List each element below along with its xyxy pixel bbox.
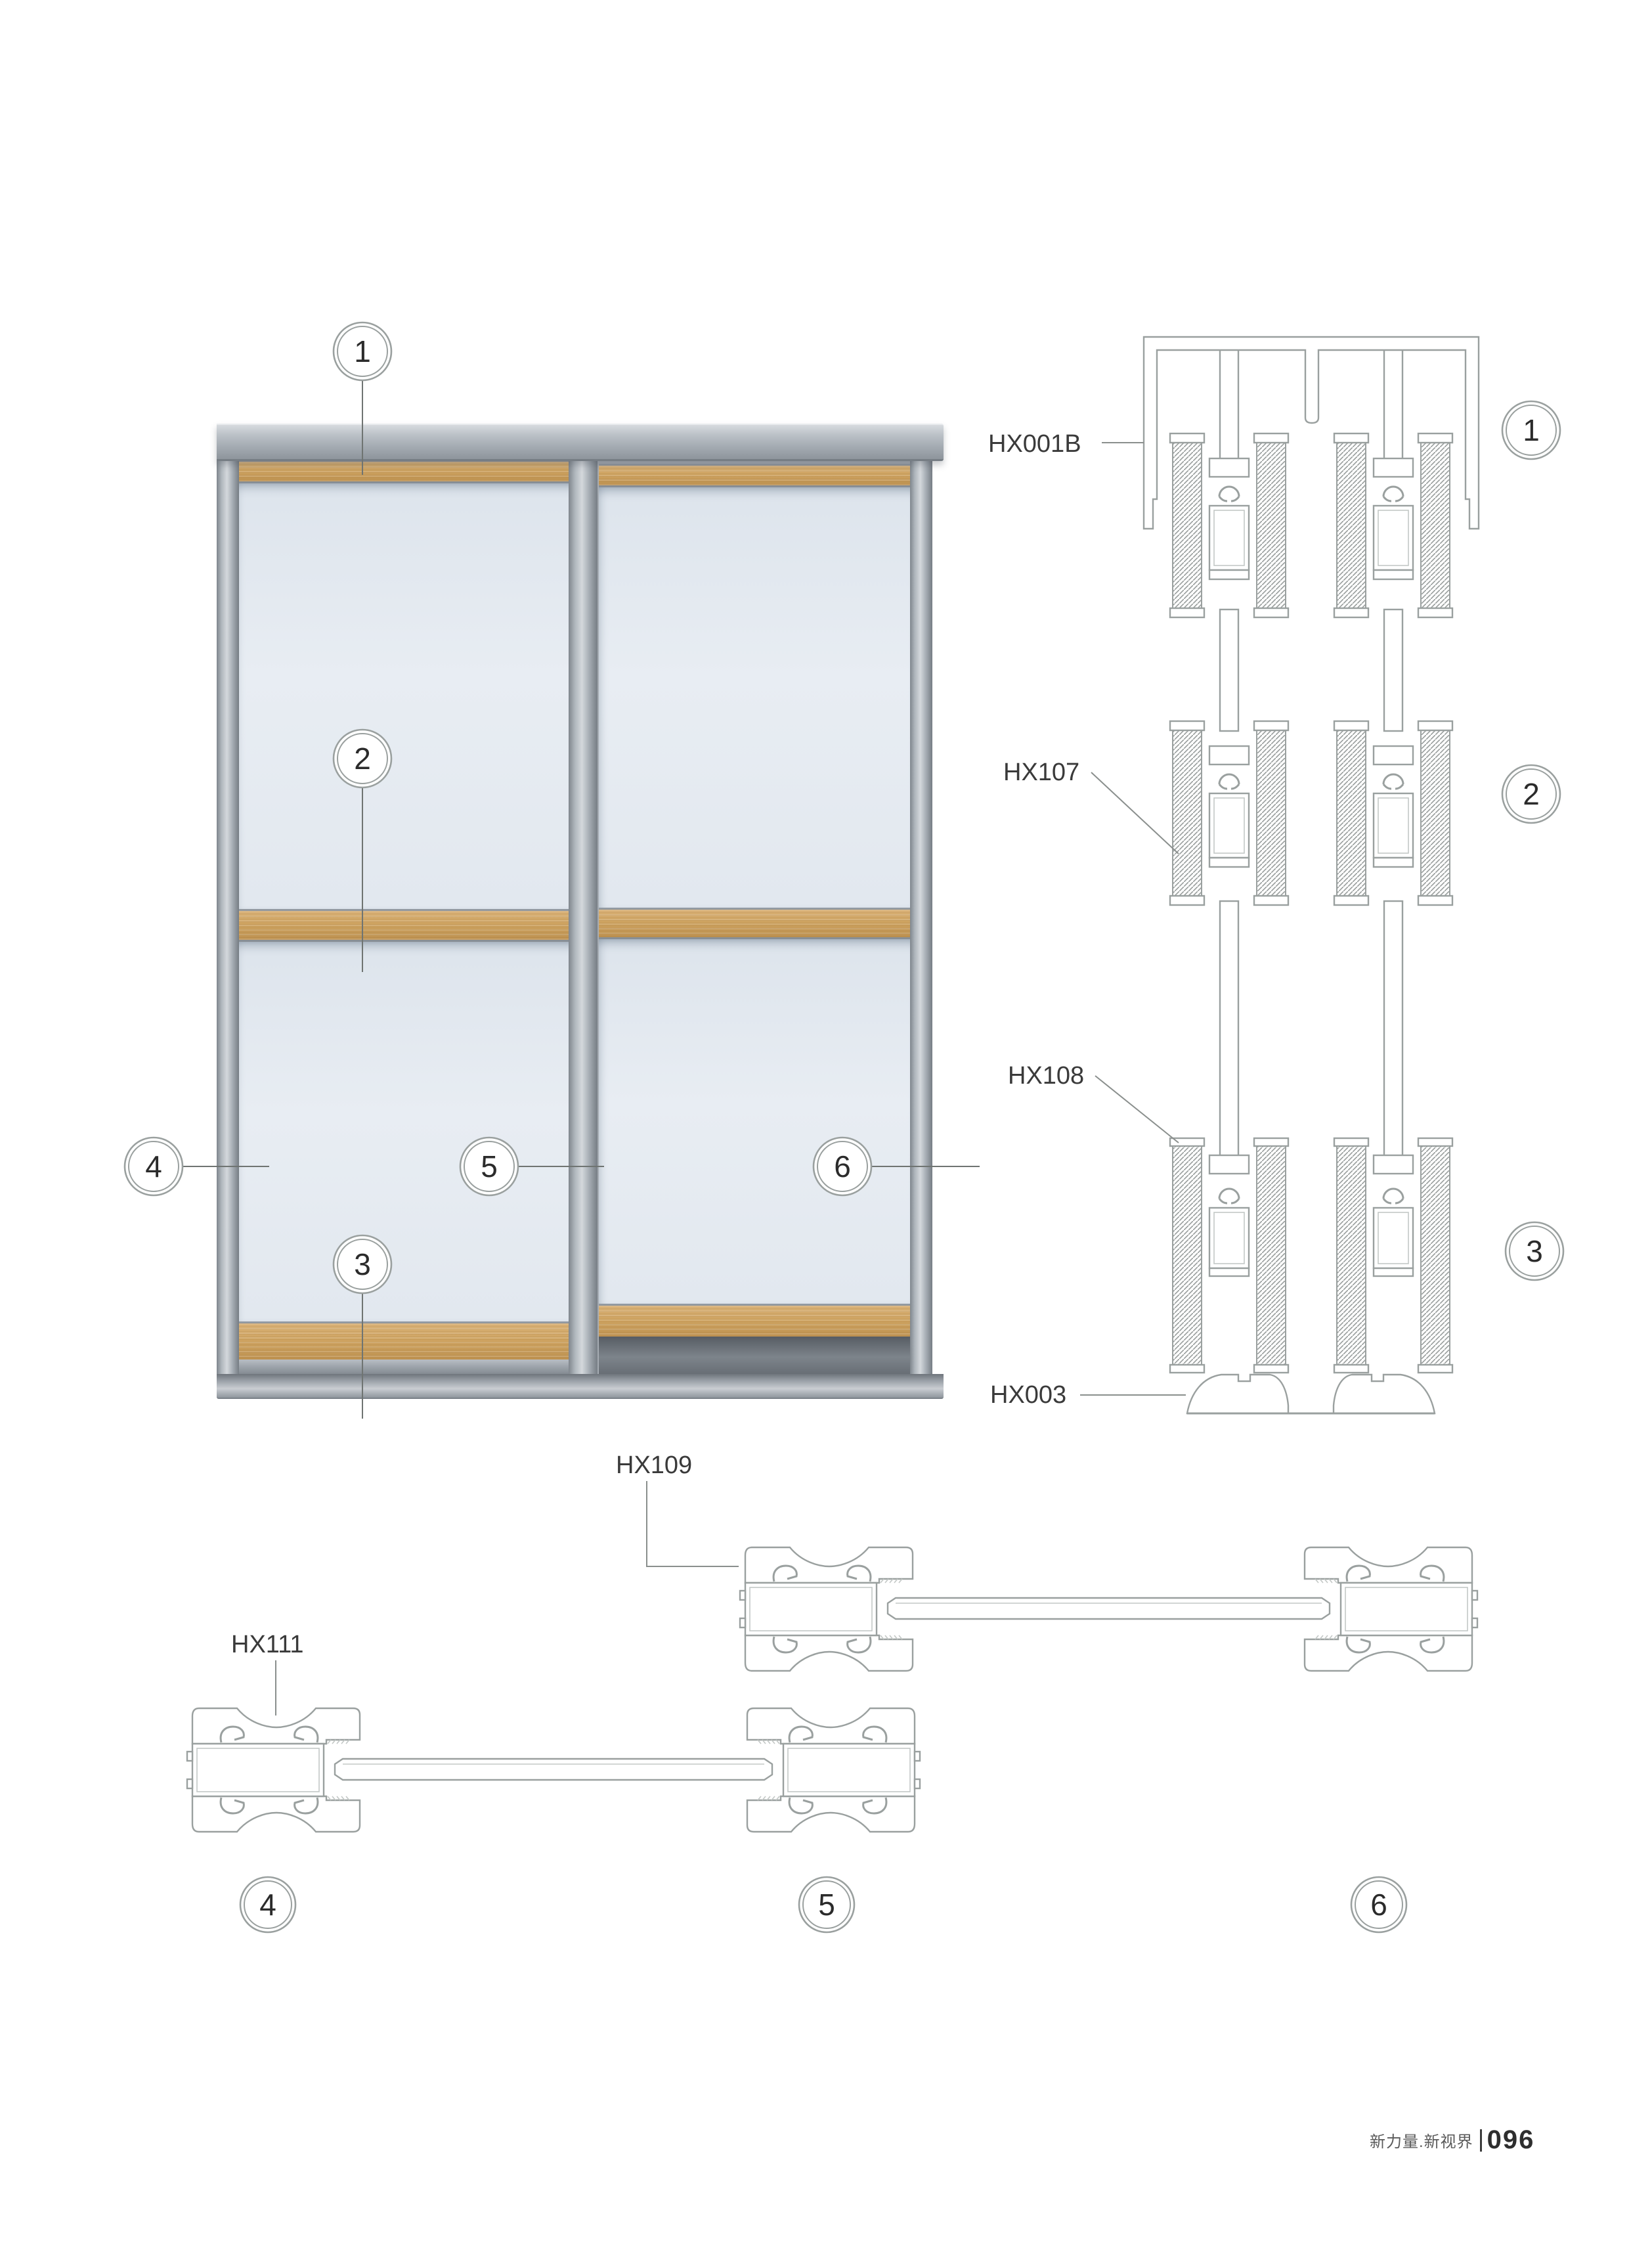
plan-section: [187, 1547, 1477, 1832]
glass-clamp-bottom-right: [1334, 1138, 1452, 1373]
door-jamb-left: [217, 432, 239, 1375]
callout-4: 4: [125, 1138, 183, 1195]
footer-divider: [1480, 2129, 1482, 2152]
svg-text:5: 5: [818, 1888, 835, 1922]
glass-clamp-mid-left: [1170, 721, 1288, 905]
panel-bar-upper: [888, 1598, 1330, 1619]
svg-text:3: 3: [1526, 1234, 1543, 1268]
glass-panel-edge: [1384, 609, 1402, 731]
glass-panel-upper: [599, 487, 918, 908]
label-hx001b: HX001B: [988, 430, 1081, 458]
wood-strip-middle: [236, 909, 587, 942]
glass-panel-edge: [1384, 901, 1402, 1164]
svg-text:2: 2: [1523, 777, 1540, 811]
sliding-door-left: [227, 442, 596, 1374]
svg-text:1: 1: [1523, 413, 1540, 447]
plan-callout-4: 4: [240, 1877, 295, 1932]
wood-strip-middle: [599, 908, 918, 939]
stile-profile-hx109: [740, 1547, 913, 1671]
stile-profile-hx111: [187, 1708, 360, 1832]
label-hx111: HX111: [231, 1631, 304, 1658]
glass-panel-edge: [1220, 901, 1238, 1164]
stile-profile-upper-right: [1305, 1547, 1477, 1671]
svg-text:6: 6: [1370, 1888, 1387, 1922]
page-footer: 新力量.新视界 096: [1370, 2125, 1534, 2155]
glass-panel-edge: [1220, 609, 1238, 731]
glass-clamp-top-right: [1334, 433, 1452, 617]
glass-panel-upper: [236, 483, 587, 909]
wood-strip-bottom: [236, 1321, 587, 1363]
section-callout-3: 3: [1506, 1222, 1563, 1280]
bottom-rail-profile: [1187, 1375, 1435, 1413]
catalog-page: HX001B HX107 HX108 HX003 HX109 HX111 1 2: [0, 0, 1652, 2258]
top-track: [217, 424, 944, 461]
bottom-track-recess: [599, 1337, 918, 1374]
label-hx109: HX109: [616, 1451, 692, 1479]
panel-bar-lower: [335, 1759, 772, 1780]
plan-callout-5: 5: [799, 1877, 854, 1932]
wood-strip-top: [599, 464, 918, 487]
sliding-door-right: [590, 452, 927, 1374]
wood-strip-bottom: [599, 1304, 918, 1340]
stile-profile-lower-middle: [747, 1708, 920, 1832]
glass-clamp-top-left: [1170, 433, 1288, 617]
wood-strip-top: [236, 460, 587, 483]
glass-panel-edge: [1384, 345, 1402, 463]
label-hx003: HX003: [990, 1381, 1066, 1409]
door-bottom-rail: [236, 1360, 587, 1374]
glass-clamp-bottom-left: [1170, 1138, 1288, 1373]
section-callout-1: 1: [1502, 401, 1560, 459]
svg-text:4: 4: [145, 1149, 162, 1184]
top-track-profile: [1144, 337, 1479, 529]
svg-text:4: 4: [259, 1888, 276, 1922]
vertical-section: [1144, 337, 1479, 1413]
glass-panel-lower: [236, 942, 587, 1321]
footer-page-number: 096: [1487, 2125, 1535, 2155]
label-hx108: HX108: [1008, 1062, 1084, 1090]
glass-clamp-mid-right: [1334, 721, 1452, 905]
section-callout-2: 2: [1502, 765, 1560, 823]
callout-1: 1: [334, 322, 391, 380]
door-jamb-right: [910, 436, 932, 1375]
door-stile-center: [569, 442, 598, 1375]
glass-panel-lower: [599, 939, 918, 1304]
footer-brand: 新力量.新视界: [1370, 2129, 1473, 2152]
label-hx107: HX107: [1003, 759, 1079, 786]
plan-callout-6: 6: [1351, 1877, 1406, 1932]
bottom-track: [217, 1374, 944, 1399]
glass-panel-edge: [1220, 345, 1238, 463]
svg-text:1: 1: [354, 334, 371, 368]
